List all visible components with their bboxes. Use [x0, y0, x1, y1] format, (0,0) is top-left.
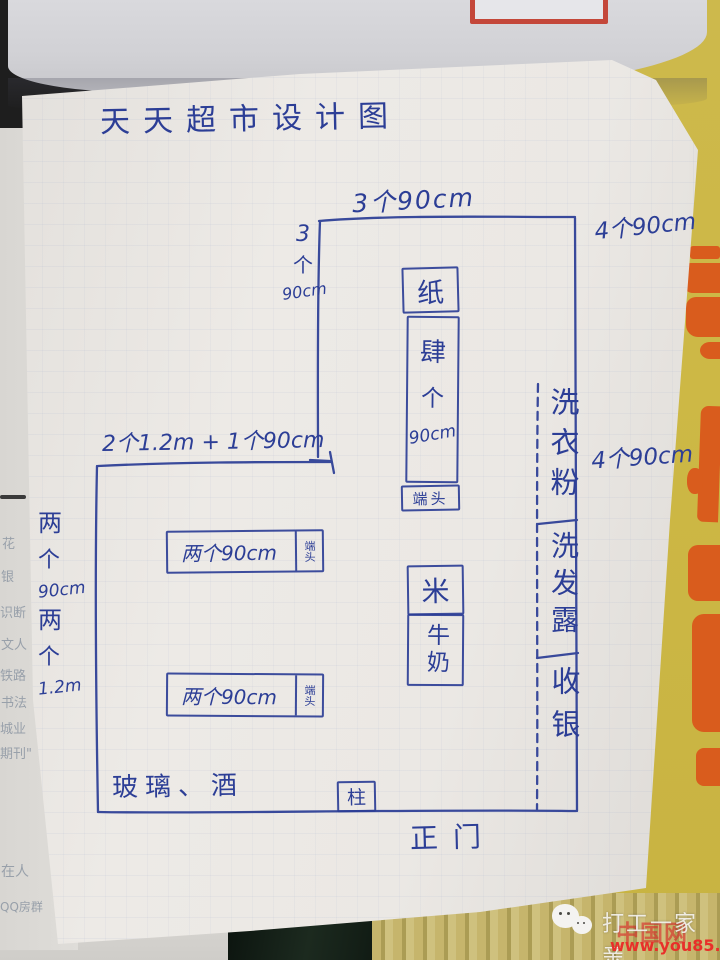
- rack-label-char: 个: [421, 379, 444, 413]
- watermark-site: www.you85.com: [610, 936, 720, 955]
- milk-label: 牛奶: [418, 623, 452, 677]
- shampoo-label: 洗发露: [543, 531, 583, 642]
- rack-label-char: 肆: [420, 332, 446, 369]
- glass-wine-label: 玻璃、酒: [112, 765, 245, 804]
- rack-label-num: 90cm: [407, 421, 457, 449]
- dim-top-width: 3个90cm: [351, 178, 476, 220]
- shelf-endcap: 端头: [295, 675, 322, 715]
- paper-shelf-label: 纸: [416, 270, 444, 310]
- shelf-row-1: 两个90cm 端头: [166, 529, 324, 574]
- dim-right-mid: 4个90cm: [590, 434, 694, 475]
- shelf-row-2: 两个90cm 端头: [166, 672, 324, 717]
- rice-box: 米: [407, 565, 465, 616]
- dim-line-mid: [98, 462, 331, 466]
- entrance-label: 正门: [409, 815, 496, 857]
- divider-washing-shampoo: [538, 520, 577, 524]
- divider-shampoo-cashier: [537, 653, 578, 658]
- photo-of-notebook: 花 银 识断 文人 铁路 书法 城业 期刊" 在人 QQ房群: [0, 0, 720, 960]
- aisle-dashed-line: [537, 384, 538, 810]
- dim-left-upper: 两 个 90cm: [38, 503, 92, 600]
- shelf-row-label: 两个90cm: [168, 537, 277, 567]
- watermark: 中国网 打工一家亲 www.you85.com: [550, 898, 720, 960]
- paper-shelf-box: 纸: [401, 266, 459, 313]
- wall-left: [96, 466, 98, 812]
- dim-mid-width: 2个1.2m + 1个90cm: [102, 422, 325, 458]
- shelf-row-label: 两个90cm: [168, 680, 277, 710]
- rack-endcap-box: 端头: [401, 484, 460, 511]
- page-title: 天天超市设计图: [100, 91, 402, 141]
- rice-label: 米: [421, 570, 450, 610]
- pillar-label: 柱: [347, 783, 366, 810]
- center-rack-box: 肆 个 90cm: [405, 316, 459, 483]
- milk-box: 牛奶: [407, 614, 465, 686]
- cashier-label: 收银: [543, 666, 585, 752]
- wechat-icon: [552, 904, 598, 940]
- pillar-box: 柱: [337, 781, 377, 813]
- shelf-endcap: 端头: [295, 531, 322, 570]
- rack-endcap-label: 端头: [412, 487, 448, 509]
- tick-junction: [310, 460, 330, 461]
- dim-top-height: 3 个 90cm: [282, 222, 324, 301]
- dim-left-lower: 两 个 1.2m: [38, 600, 92, 697]
- ink-layer: 天天超市设计图 3个90cm 4个90cm 4个90cm 2个1.2m + 1个…: [0, 0, 720, 960]
- washing-powder-label: 洗衣粉: [542, 387, 584, 507]
- store-outline-svg: [0, 0, 720, 960]
